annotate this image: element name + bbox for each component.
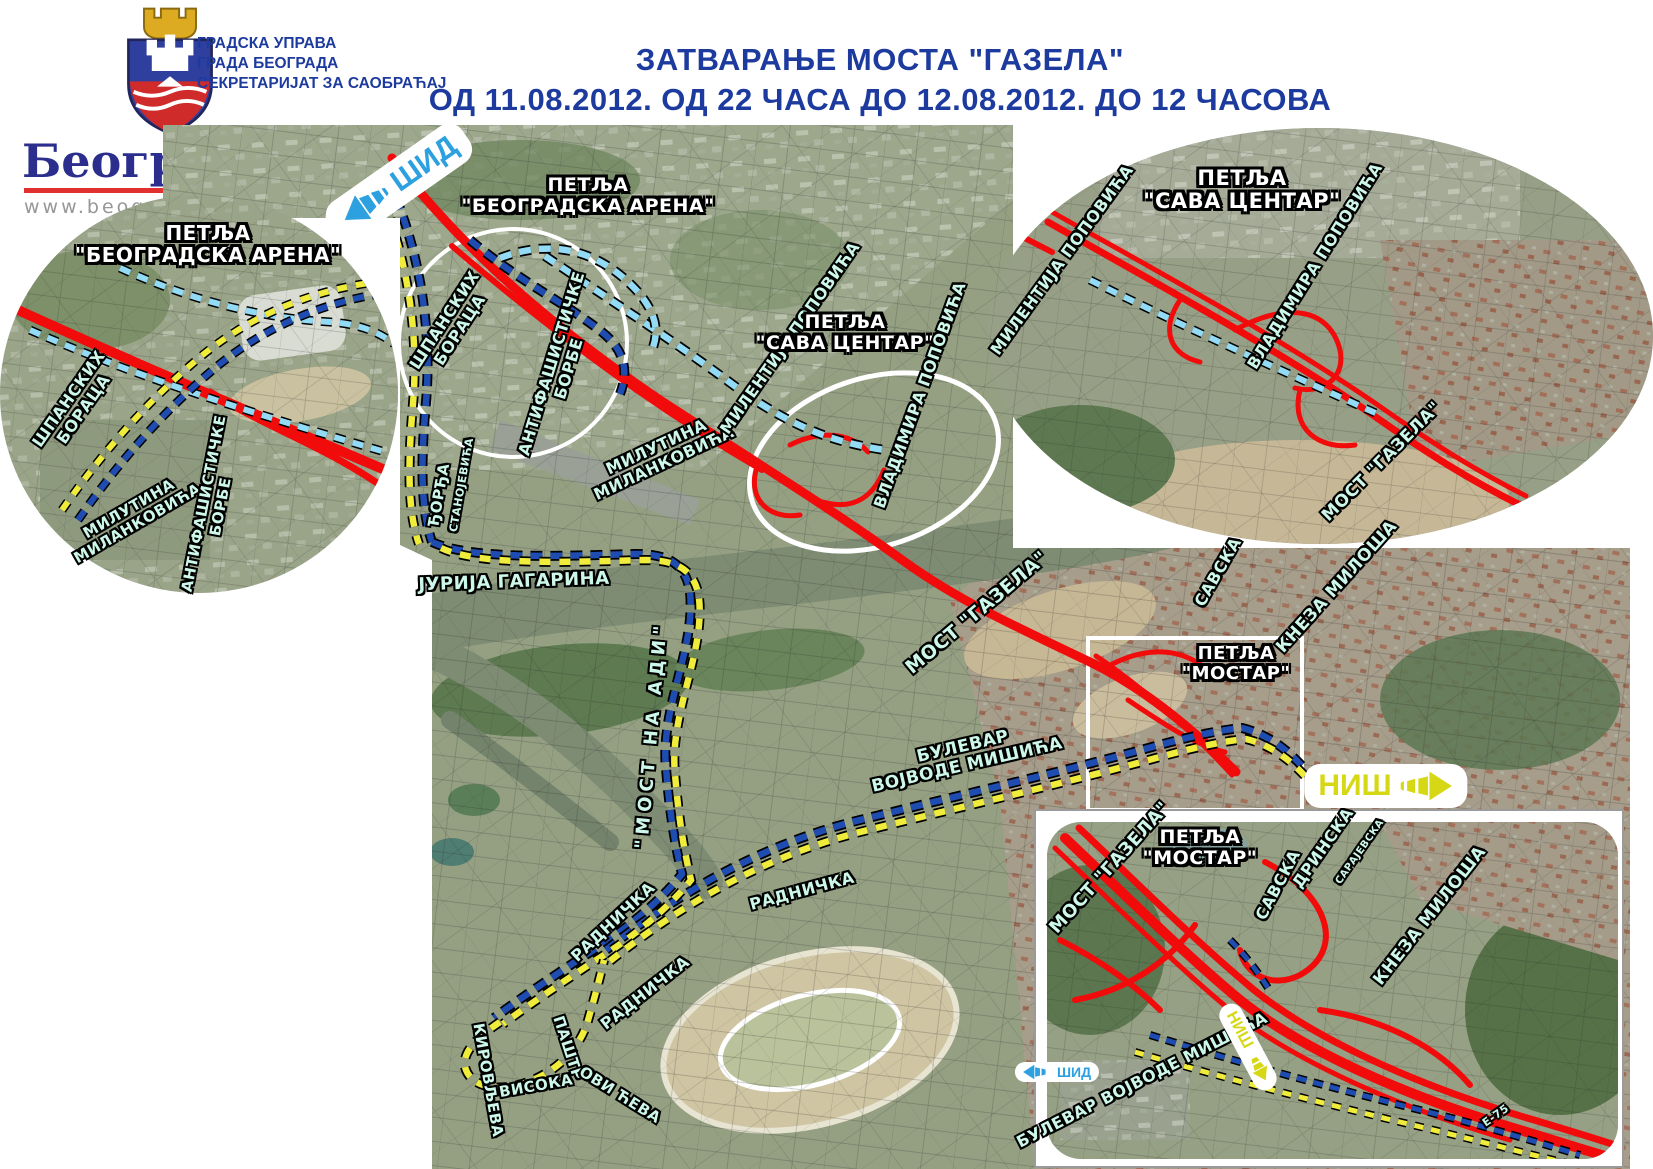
sid-direction-sign-inset: ШИД xyxy=(1015,1062,1099,1082)
arrow-left-icon xyxy=(1023,1064,1049,1080)
traffic-closure-poster: Београд www.beograd.rs ГРАДСКА УПРАВА ГР… xyxy=(0,0,1653,1169)
satellite-map xyxy=(0,0,1653,1169)
arrow-right-icon xyxy=(1400,770,1454,802)
nis-direction-sign: НИШ xyxy=(1304,764,1467,808)
sid-sign-label-inset: ШИД xyxy=(1057,1064,1091,1080)
nis-sign-label: НИШ xyxy=(1318,769,1391,803)
